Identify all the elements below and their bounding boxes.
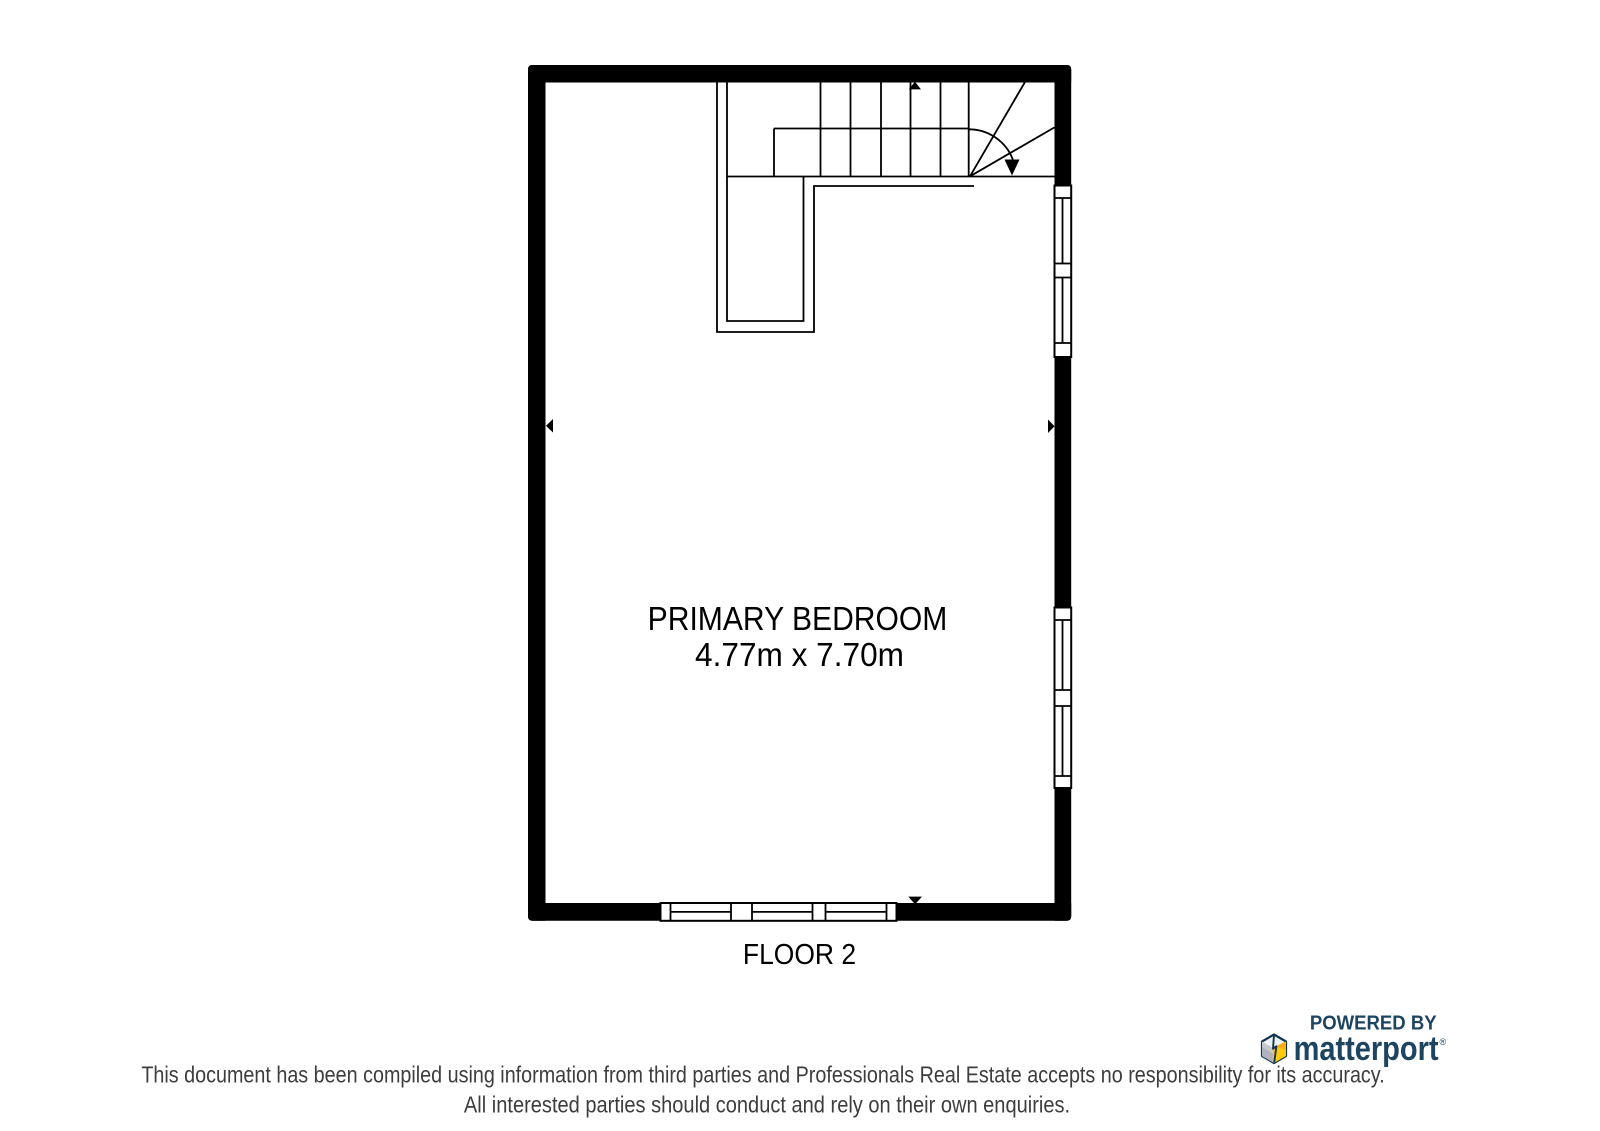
svg-text:All interested parties should: All interested parties should conduct an… <box>464 1092 1070 1118</box>
svg-text:PRIMARY BEDROOM: PRIMARY BEDROOM <box>648 600 948 638</box>
svg-text:FLOOR 2: FLOOR 2 <box>743 938 856 970</box>
svg-text:4.77m x 7.70m: 4.77m x 7.70m <box>695 636 904 673</box>
svg-text:This document has been compile: This document has been compiled using in… <box>141 1062 1384 1088</box>
svg-text:®: ® <box>1440 1037 1447 1047</box>
